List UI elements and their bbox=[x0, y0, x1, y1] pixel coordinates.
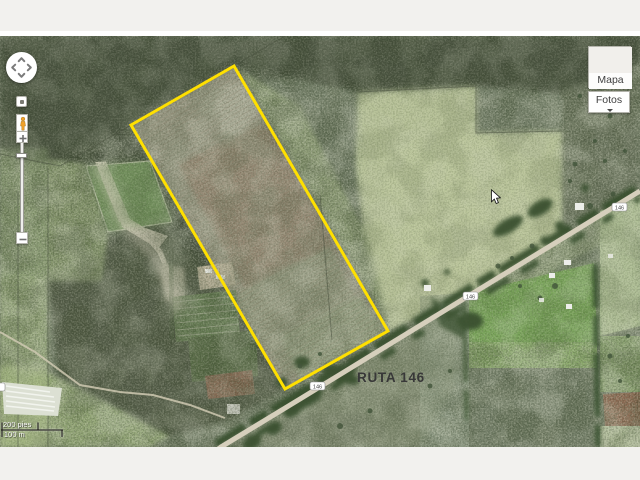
svg-text:146: 146 bbox=[615, 205, 624, 211]
svg-text:200 pies: 200 pies bbox=[3, 420, 32, 429]
svg-text:146: 146 bbox=[466, 294, 475, 300]
svg-text:100 m: 100 m bbox=[4, 430, 25, 439]
svg-text:146: 146 bbox=[313, 384, 322, 390]
